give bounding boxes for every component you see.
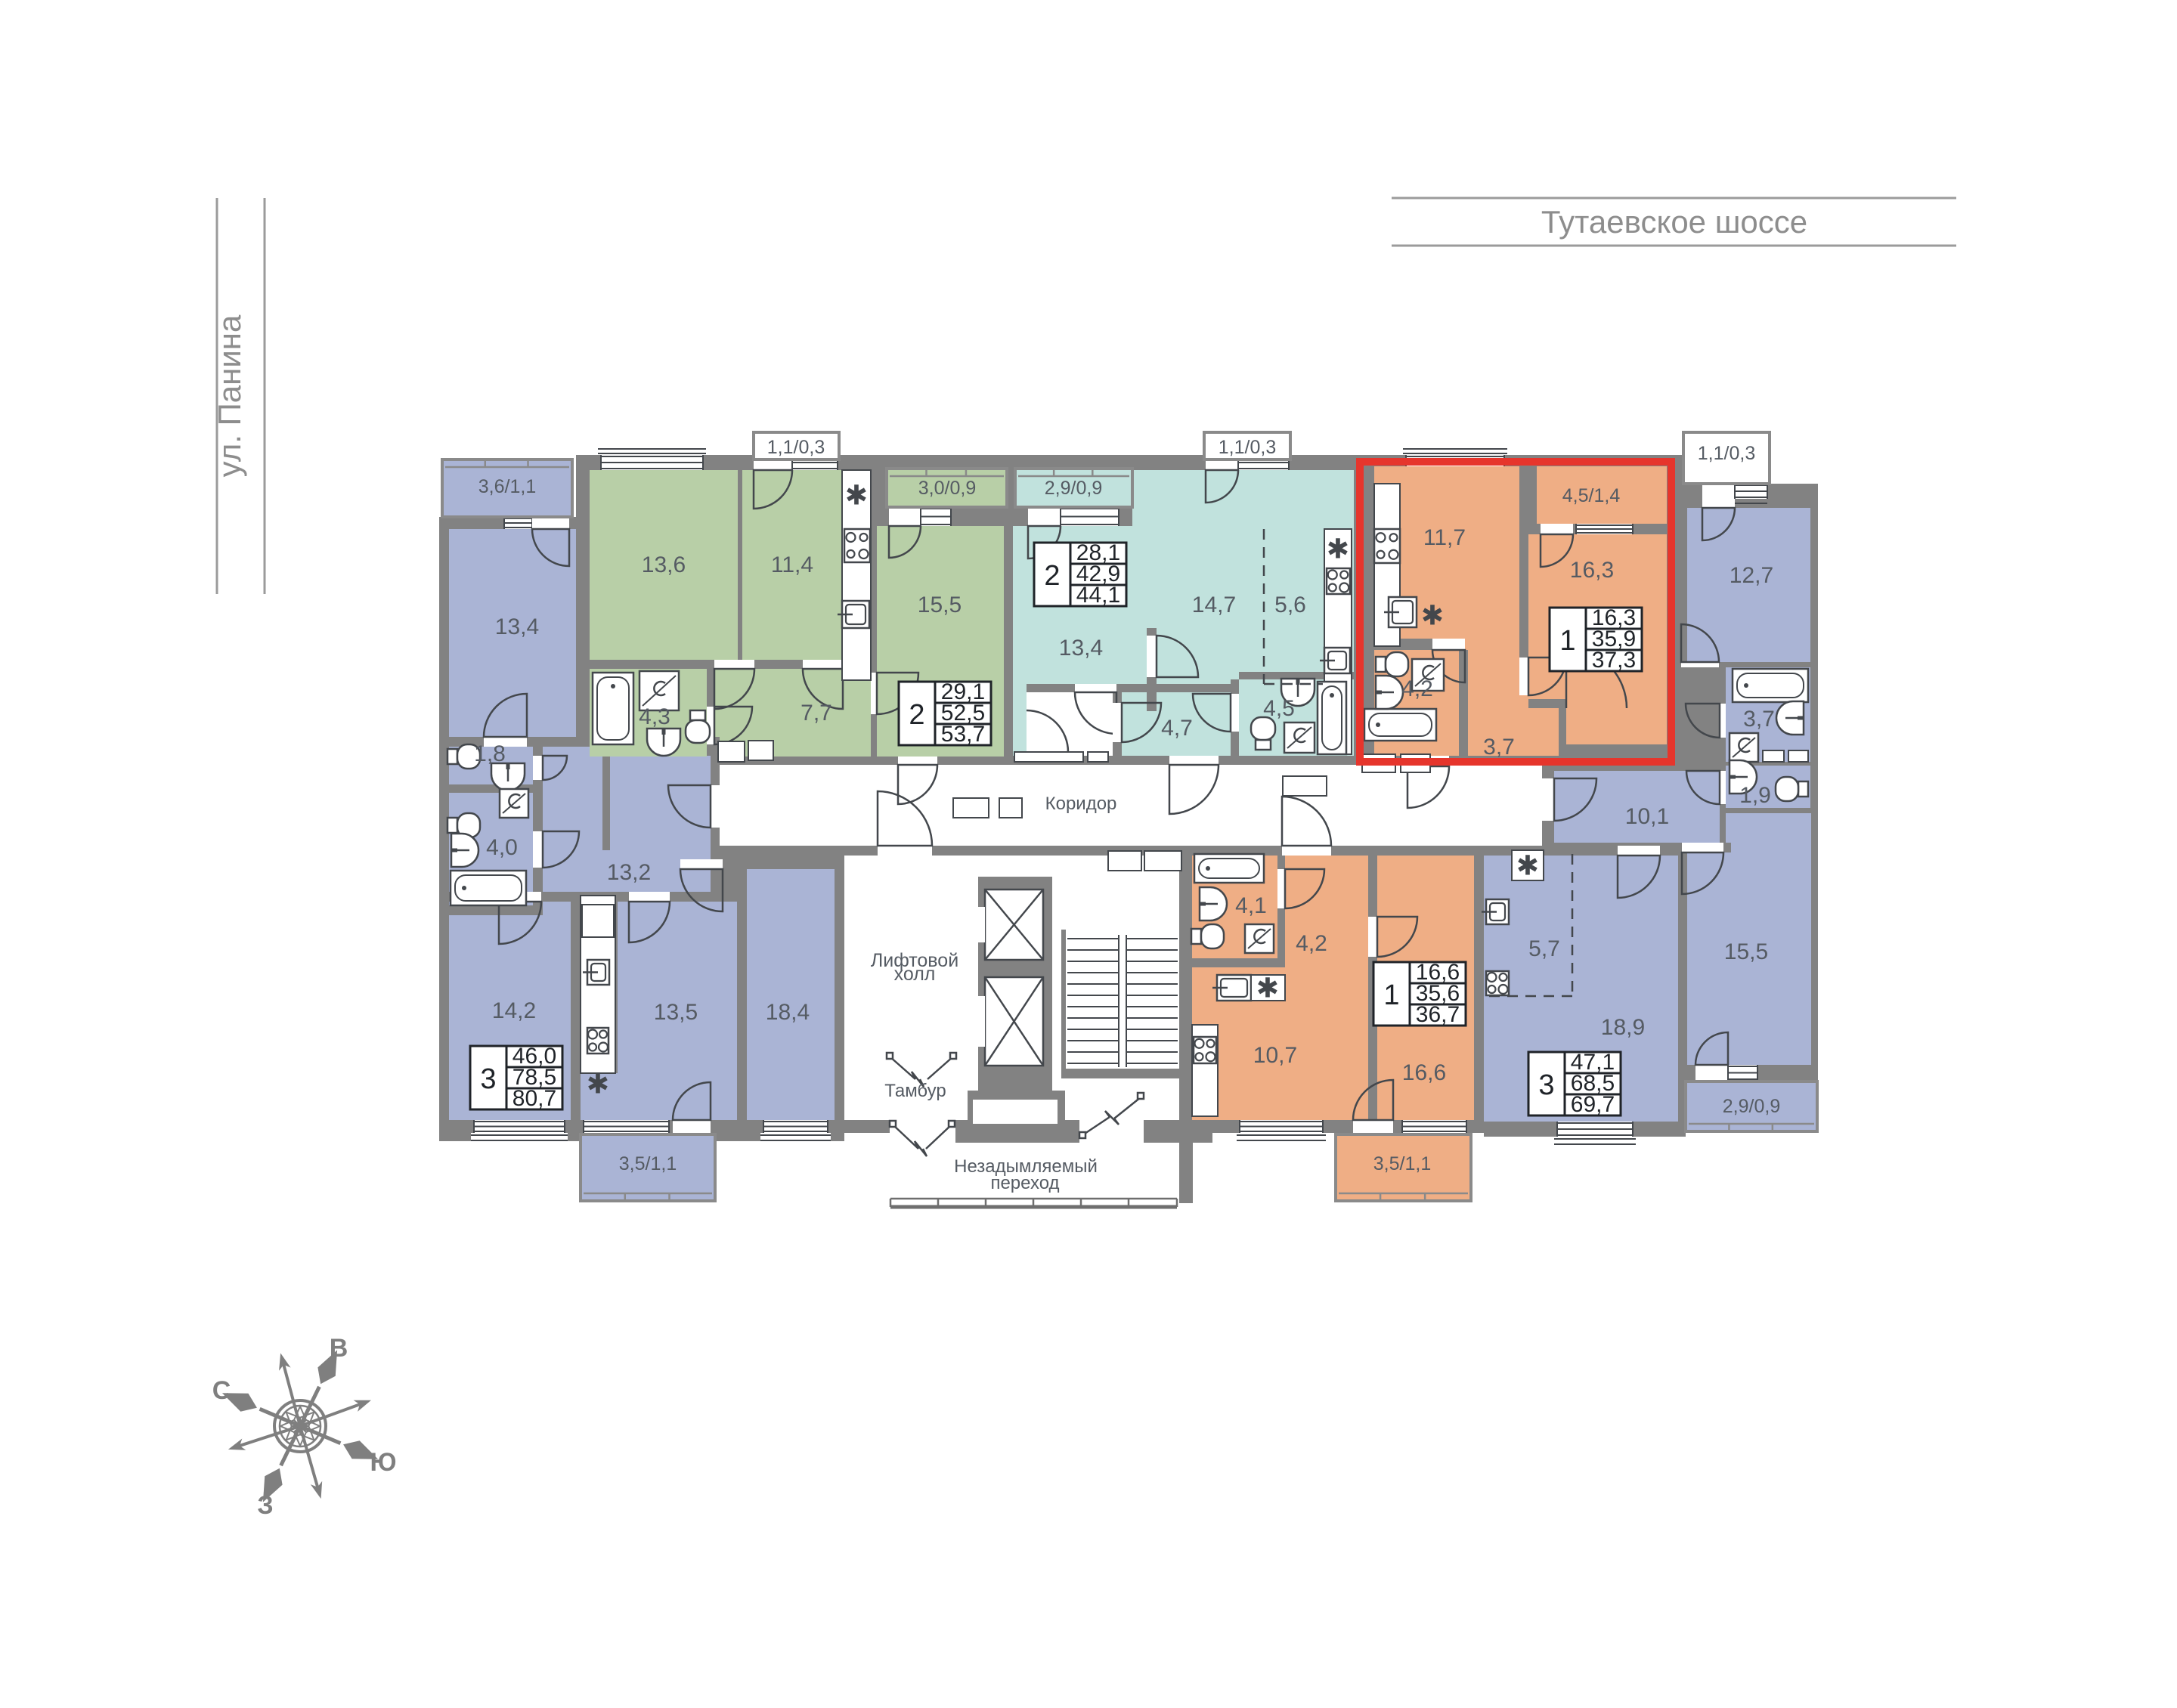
svg-text:18,4: 18,4 (766, 1000, 810, 1025)
svg-text:16,6: 16,6 (1402, 1060, 1446, 1085)
svg-text:2: 2 (1044, 560, 1060, 592)
svg-text:З: З (257, 1491, 273, 1520)
svg-text:2: 2 (909, 699, 924, 731)
svg-text:18,9: 18,9 (1601, 1015, 1645, 1040)
svg-text:3,0/0,9: 3,0/0,9 (918, 478, 976, 499)
svg-text:✱: ✱ (845, 480, 868, 511)
svg-text:5,6: 5,6 (1274, 593, 1306, 617)
svg-text:13,5: 13,5 (654, 1000, 698, 1025)
svg-text:3,7: 3,7 (1483, 735, 1515, 760)
svg-text:1,1/0,3: 1,1/0,3 (767, 437, 825, 458)
svg-text:1,1/0,3: 1,1/0,3 (1219, 437, 1276, 458)
svg-text:12,7: 12,7 (1730, 563, 1773, 588)
svg-text:3,7: 3,7 (1743, 707, 1775, 732)
svg-text:4,0: 4,0 (486, 835, 518, 860)
svg-text:4,3: 4,3 (639, 704, 670, 729)
svg-text:13,4: 13,4 (495, 614, 539, 639)
svg-text:11,4: 11,4 (771, 552, 813, 577)
svg-text:10,7: 10,7 (1253, 1043, 1297, 1068)
svg-text:14,7: 14,7 (1192, 593, 1236, 617)
svg-text:1,1/0,3: 1,1/0,3 (1698, 443, 1755, 464)
svg-text:4,1: 4,1 (1235, 893, 1267, 918)
svg-text:4,5/1,4: 4,5/1,4 (1562, 485, 1621, 506)
svg-text:2,9/0,9: 2,9/0,9 (1045, 478, 1102, 499)
svg-text:4,2: 4,2 (1401, 676, 1433, 701)
svg-text:✱: ✱ (1421, 600, 1444, 631)
svg-text:Коридор: Коридор (1045, 794, 1117, 814)
svg-text:4,7: 4,7 (1161, 716, 1193, 741)
svg-text:холл: холл (894, 964, 936, 985)
svg-text:7,7: 7,7 (801, 701, 832, 726)
svg-text:1,9: 1,9 (1739, 783, 1771, 808)
svg-text:В: В (330, 1334, 348, 1363)
svg-text:53,7: 53,7 (941, 722, 985, 747)
svg-text:С: С (212, 1376, 231, 1405)
svg-text:Тамбур: Тамбур (884, 1081, 946, 1101)
svg-text:✱: ✱ (1516, 850, 1539, 881)
svg-text:1: 1 (1559, 625, 1575, 657)
svg-text:15,5: 15,5 (918, 593, 962, 617)
svg-text:5,7: 5,7 (1528, 936, 1560, 961)
svg-text:3,5/1,1: 3,5/1,1 (1373, 1153, 1431, 1174)
svg-text:3,5/1,1: 3,5/1,1 (619, 1153, 677, 1174)
svg-text:Ю: Ю (370, 1448, 396, 1477)
svg-text:✱: ✱ (587, 1069, 609, 1100)
svg-text:11,7: 11,7 (1423, 525, 1466, 550)
svg-text:4,2: 4,2 (1296, 931, 1327, 956)
svg-text:3: 3 (480, 1063, 496, 1095)
svg-text:10,1: 10,1 (1625, 804, 1669, 829)
svg-text:2,9/0,9: 2,9/0,9 (1723, 1096, 1780, 1117)
svg-text:37,3: 37,3 (1592, 648, 1636, 673)
svg-text:ул. Панина: ул. Панина (212, 314, 247, 477)
svg-text:16,3: 16,3 (1570, 558, 1614, 583)
svg-text:69,7: 69,7 (1571, 1092, 1615, 1117)
svg-text:44,1: 44,1 (1076, 583, 1120, 608)
svg-text:4,5: 4,5 (1263, 696, 1295, 721)
svg-text:Тутаевское шоссе: Тутаевское шоссе (1541, 204, 1807, 240)
svg-text:13,2: 13,2 (607, 860, 651, 885)
svg-text:3,6/1,1: 3,6/1,1 (478, 476, 536, 497)
svg-text:36,7: 36,7 (1416, 1002, 1460, 1027)
svg-text:15,5: 15,5 (1724, 939, 1768, 964)
svg-text:переход: переход (990, 1173, 1059, 1193)
svg-text:1: 1 (1383, 979, 1399, 1011)
svg-text:1,8: 1,8 (474, 741, 506, 766)
svg-text:13,4: 13,4 (1059, 636, 1103, 661)
svg-text:14,2: 14,2 (492, 998, 536, 1023)
svg-text:13,6: 13,6 (642, 552, 686, 577)
svg-text:✱: ✱ (1327, 534, 1349, 565)
svg-text:✱: ✱ (1256, 973, 1279, 1004)
svg-text:3: 3 (1538, 1069, 1554, 1101)
svg-text:80,7: 80,7 (513, 1086, 556, 1111)
